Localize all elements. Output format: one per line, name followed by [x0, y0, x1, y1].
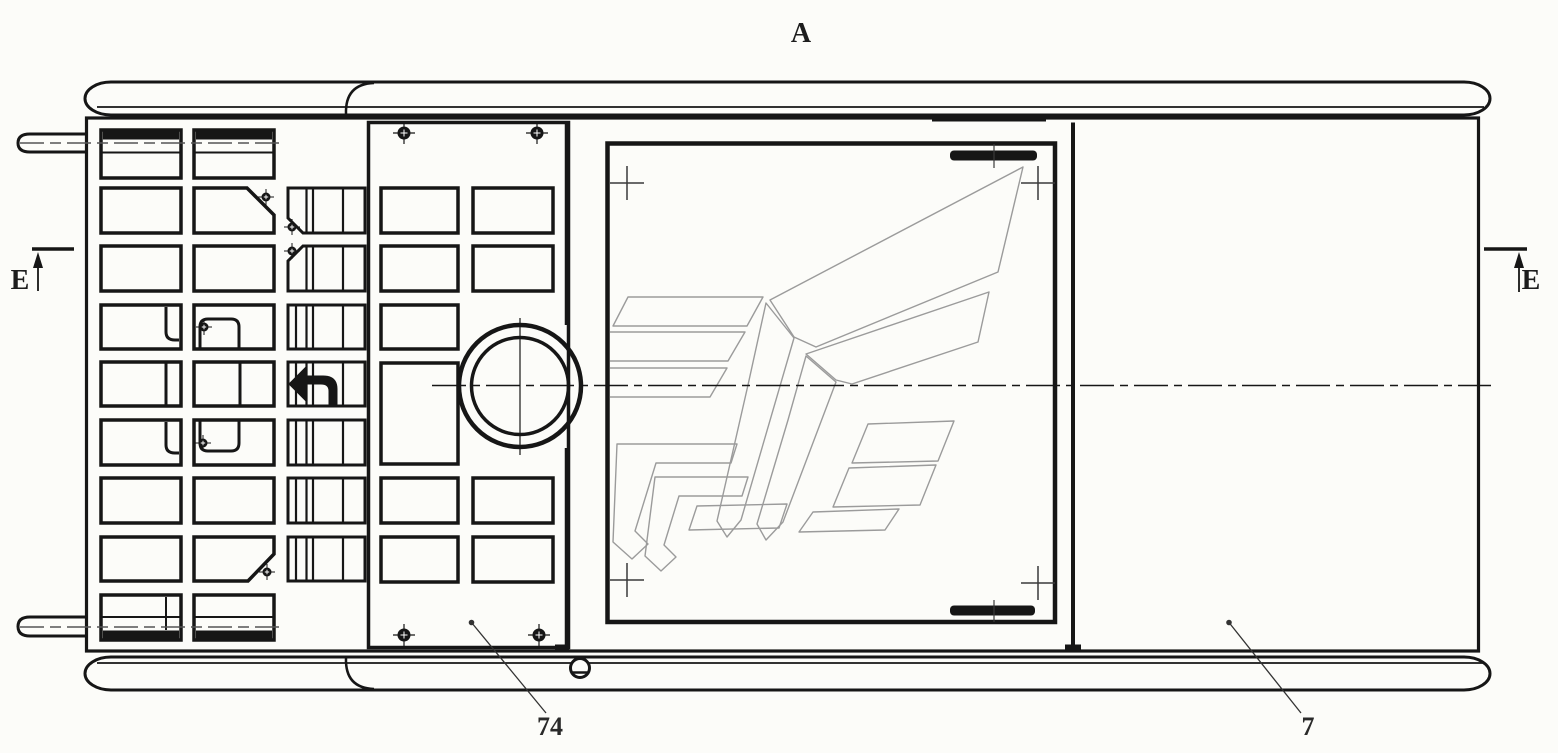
keypad-key [101, 246, 181, 291]
display-frame [608, 144, 1056, 623]
callout-label-74: 74 [537, 712, 563, 741]
center-panel-outline [369, 123, 569, 648]
panel-slot [473, 478, 553, 523]
device-top-view-drawing: A E E 74 7 [0, 0, 1558, 753]
panel-slot [381, 363, 458, 464]
screw-heads [195, 122, 550, 646]
keypad-contact-grid [101, 130, 365, 640]
keypad-key [194, 478, 274, 523]
screw-head-icon [526, 122, 548, 144]
top-hinge-band [85, 82, 1490, 115]
leader-line [1229, 623, 1301, 714]
logo-stroke [799, 509, 899, 532]
contact-strip-group [288, 478, 365, 523]
logo-stroke [613, 297, 763, 326]
latch-notch [166, 307, 179, 340]
contact-bar [103, 132, 179, 140]
keypad-key [101, 362, 181, 406]
top-slot-bar [932, 116, 1046, 122]
panel-slot [381, 188, 458, 233]
slotted-screw-icon [571, 659, 590, 678]
panel-slot [381, 246, 458, 291]
contact-strip-group [288, 188, 365, 233]
keypad-key [194, 362, 274, 406]
logo-stroke [609, 368, 727, 397]
screw-head-icon [196, 319, 212, 335]
section-label-e-right: E [1522, 265, 1541, 296]
contact-bar [103, 631, 179, 639]
keypad-key [101, 478, 181, 523]
panel-slot [381, 305, 458, 349]
latch-notch [166, 422, 179, 453]
logo-stroke [770, 167, 1023, 347]
screw-head-icon [284, 243, 300, 259]
keypad-key [101, 420, 181, 465]
contact-strip-group [288, 420, 365, 465]
keypad-key [101, 537, 181, 581]
hinge-pins [18, 134, 88, 636]
logo-stroke [609, 332, 745, 361]
contact-strip-group [288, 305, 365, 349]
keypad-key-clipped [194, 537, 274, 581]
logo-stroke [852, 421, 954, 463]
speaker-slot-icon [950, 606, 1035, 616]
logo-stroke [806, 292, 989, 384]
keypad-key [101, 305, 181, 349]
logo-stroke [757, 356, 836, 540]
panel-slot [381, 537, 458, 582]
logo-stroke [689, 504, 787, 530]
contact-bar [196, 631, 272, 639]
keypad-key-clipped [194, 188, 274, 233]
logo-stroke [645, 477, 748, 571]
keypad-key [194, 246, 274, 291]
wing-emblem-logo [609, 167, 1023, 571]
callout-label-7: 7 [1302, 712, 1315, 741]
screw-head-icon [284, 219, 300, 235]
logo-stroke [717, 303, 794, 537]
registration-cross-icon [1021, 566, 1055, 600]
view-label-a: A [791, 18, 812, 49]
panel-slot [473, 537, 553, 582]
top-band-seam [346, 83, 374, 114]
panel-slot [473, 188, 553, 233]
patent-drawing-sheet: A E E 74 7 [0, 0, 1558, 753]
part-callouts [469, 620, 1301, 713]
screw-head-icon [393, 122, 415, 144]
keypad-key [101, 188, 181, 233]
section-markers [32, 249, 1527, 292]
logo-stroke [833, 465, 936, 507]
screw-head-icon [195, 435, 211, 451]
section-arrow-icon [33, 252, 43, 268]
display-window [608, 116, 1074, 650]
registration-cross-icon [1021, 166, 1055, 200]
registration-cross-icon [610, 563, 644, 597]
logo-stroke [613, 444, 737, 559]
contact-strip-group [288, 246, 365, 291]
contact-strip-group [288, 537, 365, 581]
screw-head-icon [393, 624, 415, 646]
camera-lens [459, 318, 581, 455]
panel-slot [473, 246, 553, 291]
section-label-e-left: E [11, 265, 30, 296]
registration-cross-icon [610, 166, 644, 200]
screw-head-icon [528, 624, 550, 646]
panel-slot [381, 478, 458, 523]
contact-bar [196, 132, 272, 140]
center-panel [369, 123, 569, 648]
